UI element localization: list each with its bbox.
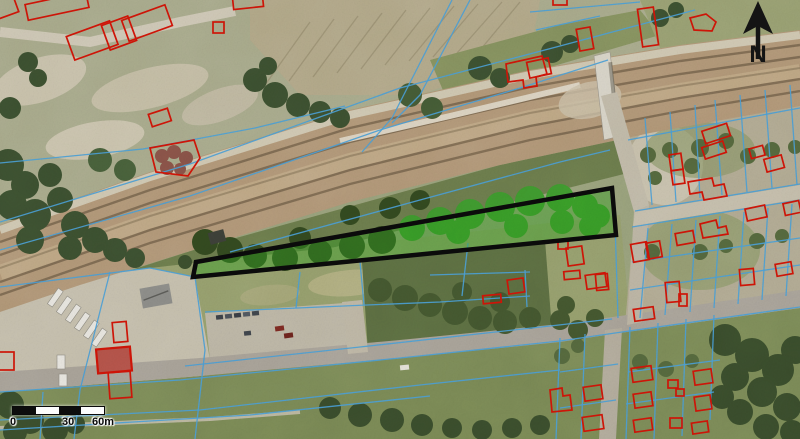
aerial-photo-basemap (0, 0, 800, 439)
scale-bar: 0 30 60m (12, 406, 106, 436)
aerial-map-viewport: N 0 30 60m (0, 0, 800, 439)
north-arrow: N (736, 0, 782, 68)
north-arrow-icon: N (736, 0, 782, 68)
north-label: N (749, 41, 766, 68)
scale-bar-segments (12, 406, 105, 415)
scale-bar-labels: 0 30 60m (12, 416, 106, 430)
scale-label-60: 60m (92, 416, 114, 428)
photo-grain-texture (0, 0, 800, 439)
scale-label-30: 30 (62, 416, 74, 428)
scale-label-0: 0 (10, 416, 16, 428)
